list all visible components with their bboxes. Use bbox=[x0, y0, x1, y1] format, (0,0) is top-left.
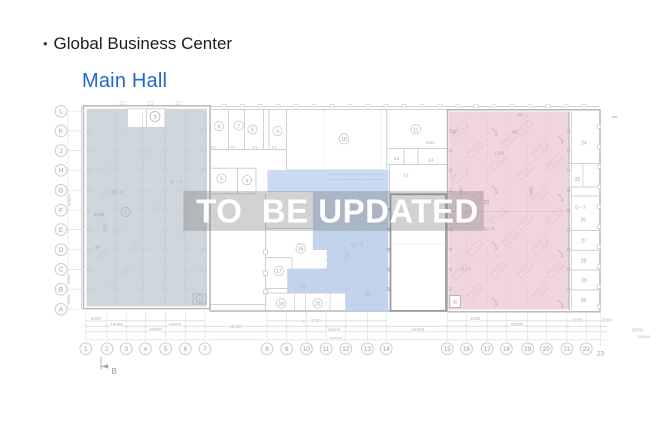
svg-text:H: H bbox=[59, 168, 64, 175]
svg-text:D: D bbox=[59, 247, 64, 254]
svg-text:27: 27 bbox=[581, 239, 587, 245]
svg-text:20: 20 bbox=[315, 302, 321, 308]
svg-text:E: E bbox=[59, 227, 63, 234]
svg-text:32: 32 bbox=[452, 300, 458, 305]
svg-text:23: 23 bbox=[597, 351, 605, 358]
svg-text:6000: 6000 bbox=[529, 186, 534, 196]
svg-text:45°: 45° bbox=[512, 130, 519, 135]
svg-text:C: C bbox=[59, 267, 64, 274]
svg-text:6000: 6000 bbox=[66, 274, 71, 284]
svg-text:22: 22 bbox=[583, 346, 591, 353]
svg-text:45°: 45° bbox=[95, 245, 102, 250]
svg-text:11: 11 bbox=[413, 127, 418, 133]
svg-text:7: 7 bbox=[203, 346, 207, 353]
svg-text:L: L bbox=[59, 109, 63, 116]
svg-text:1: 1 bbox=[84, 346, 88, 353]
svg-text:30: 30 bbox=[581, 298, 587, 304]
svg-text:21: 21 bbox=[563, 346, 571, 353]
svg-text:B: B bbox=[59, 286, 63, 293]
svg-text:6: 6 bbox=[184, 346, 188, 353]
svg-text:4: 4 bbox=[246, 178, 249, 184]
svg-text:18400: 18400 bbox=[412, 327, 425, 332]
svg-text:6: 6 bbox=[218, 124, 221, 130]
svg-text:28: 28 bbox=[581, 258, 587, 264]
svg-text:Q + 3: Q + 3 bbox=[111, 190, 123, 195]
svg-text:Q = 3: Q = 3 bbox=[351, 243, 363, 249]
svg-text:14: 14 bbox=[428, 158, 434, 164]
svg-text:24: 24 bbox=[581, 141, 587, 147]
svg-text:13: 13 bbox=[364, 346, 372, 353]
svg-text:15: 15 bbox=[298, 247, 304, 253]
svg-text:12: 12 bbox=[394, 156, 400, 162]
svg-text:26: 26 bbox=[581, 218, 587, 224]
svg-text:19: 19 bbox=[300, 285, 306, 291]
svg-text:F: F bbox=[59, 208, 63, 215]
svg-text:J: J bbox=[59, 148, 62, 155]
svg-text:10: 10 bbox=[341, 137, 347, 143]
svg-text:18000: 18000 bbox=[110, 322, 123, 327]
svg-text:8: 8 bbox=[251, 128, 254, 134]
svg-text:21: 21 bbox=[345, 254, 351, 260]
svg-text:9: 9 bbox=[285, 346, 289, 353]
svg-text:12: 12 bbox=[342, 346, 350, 353]
svg-text:17: 17 bbox=[484, 346, 492, 353]
svg-text:2: 2 bbox=[105, 346, 109, 353]
svg-text:4: 4 bbox=[144, 346, 148, 353]
svg-text:23: 23 bbox=[517, 112, 523, 117]
svg-text:14: 14 bbox=[383, 346, 391, 353]
svg-text:10: 10 bbox=[303, 346, 311, 353]
svg-text:2000: 2000 bbox=[311, 318, 322, 323]
svg-text:Q = 3: Q = 3 bbox=[484, 226, 495, 231]
svg-text:15: 15 bbox=[444, 346, 452, 353]
svg-text:36000: 36000 bbox=[149, 327, 162, 332]
svg-text:153693: 153693 bbox=[329, 335, 343, 340]
svg-text:13: 13 bbox=[403, 173, 409, 179]
svg-text:5: 5 bbox=[220, 177, 223, 183]
svg-text:3: 3 bbox=[124, 346, 128, 353]
svg-text:G: G bbox=[59, 188, 64, 195]
svg-text:153800: 153800 bbox=[637, 334, 651, 339]
svg-text:1300: 1300 bbox=[494, 150, 504, 155]
svg-text:1000: 1000 bbox=[470, 316, 481, 321]
svg-text:36000: 36000 bbox=[328, 328, 341, 333]
svg-text:60000: 60000 bbox=[67, 194, 72, 206]
svg-text:9: 9 bbox=[276, 129, 279, 135]
svg-text:6000: 6000 bbox=[103, 223, 108, 233]
svg-text:18: 18 bbox=[279, 302, 285, 308]
svg-text:11: 11 bbox=[323, 346, 330, 353]
svg-text:2: 2 bbox=[124, 210, 127, 215]
svg-text:1000: 1000 bbox=[425, 140, 435, 145]
svg-text:Q = 3: Q = 3 bbox=[461, 266, 472, 271]
svg-text:3: 3 bbox=[154, 115, 157, 121]
svg-text:22: 22 bbox=[365, 292, 371, 298]
svg-text:TO BE UPDATED: TO BE UPDATED bbox=[196, 193, 479, 230]
svg-text:5: 5 bbox=[164, 346, 168, 353]
svg-text:8: 8 bbox=[265, 346, 269, 353]
svg-text:29: 29 bbox=[581, 278, 587, 284]
svg-text:18000: 18000 bbox=[168, 322, 181, 327]
svg-text:3000: 3000 bbox=[602, 317, 613, 322]
svg-text:16: 16 bbox=[463, 346, 471, 353]
svg-text:20: 20 bbox=[543, 346, 551, 353]
svg-text:36000: 36000 bbox=[632, 328, 644, 333]
svg-text:6000: 6000 bbox=[66, 294, 71, 304]
svg-text:18: 18 bbox=[503, 346, 511, 353]
svg-text:2000: 2000 bbox=[94, 212, 105, 217]
svg-text:Q + 3: Q + 3 bbox=[170, 179, 182, 184]
svg-text:18000: 18000 bbox=[229, 324, 242, 329]
svg-text:6000: 6000 bbox=[573, 317, 584, 322]
svg-text:B: B bbox=[112, 367, 118, 376]
svg-text:6000: 6000 bbox=[91, 316, 102, 321]
svg-text:45°: 45° bbox=[452, 130, 459, 135]
svg-text:Q = 3: Q = 3 bbox=[575, 205, 586, 210]
svg-text:45000: 45000 bbox=[510, 322, 523, 327]
svg-text:17: 17 bbox=[276, 269, 282, 275]
svg-text:19: 19 bbox=[524, 346, 532, 353]
svg-text:7: 7 bbox=[237, 124, 240, 130]
svg-text:25: 25 bbox=[575, 177, 581, 183]
svg-text:31: 31 bbox=[484, 200, 490, 206]
